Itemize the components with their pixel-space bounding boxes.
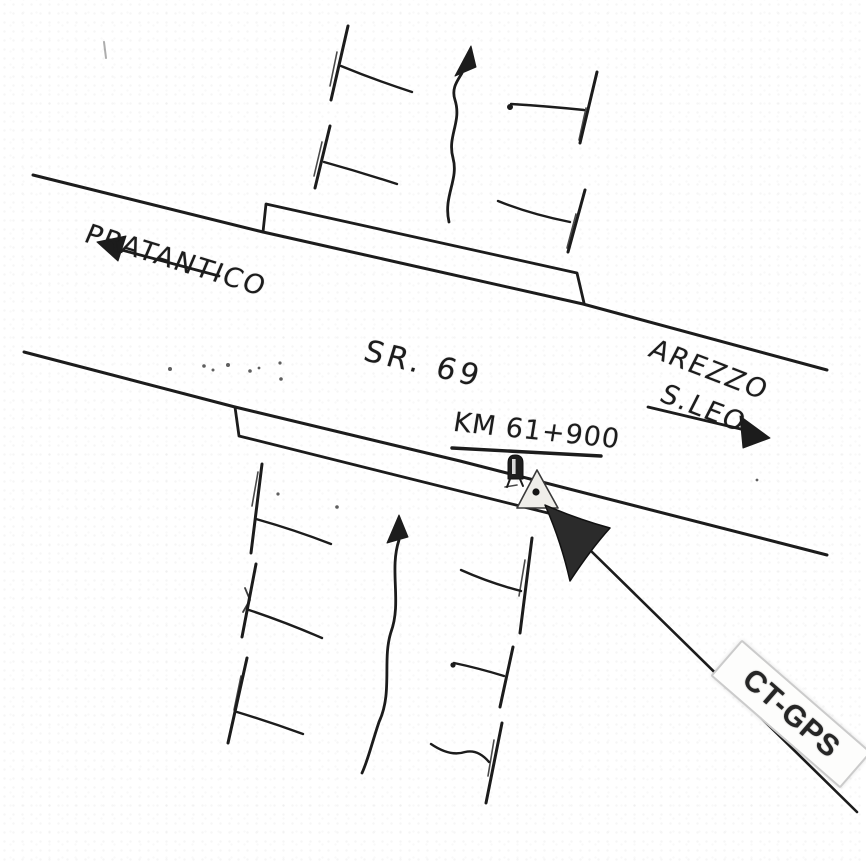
utility-pole-icon bbox=[330, 26, 412, 100]
stream-flow-arrow-top bbox=[448, 46, 476, 222]
utility-pole-icon bbox=[450, 647, 513, 707]
road-edge-top bbox=[33, 175, 827, 370]
road-shoulder-top bbox=[263, 204, 584, 303]
utility-pole-icon bbox=[242, 564, 322, 638]
km-milestone-icon bbox=[505, 455, 523, 487]
utility-pole-icon bbox=[461, 538, 532, 633]
utility-pole-icon bbox=[507, 72, 597, 143]
location-pointer-arrow bbox=[545, 505, 610, 581]
utility-pole-icon bbox=[251, 464, 331, 553]
utility-pole-icon bbox=[228, 658, 303, 743]
scanned-road-sketch: PRATANTICO SR. 69 KM 61+900 AREZZO S.LEO… bbox=[0, 0, 866, 866]
stream-flow-arrow-bottom bbox=[362, 515, 408, 773]
utility-pole-icon bbox=[498, 190, 585, 252]
utility-pole-icon bbox=[314, 126, 397, 188]
utility-pole-icon bbox=[431, 723, 502, 803]
